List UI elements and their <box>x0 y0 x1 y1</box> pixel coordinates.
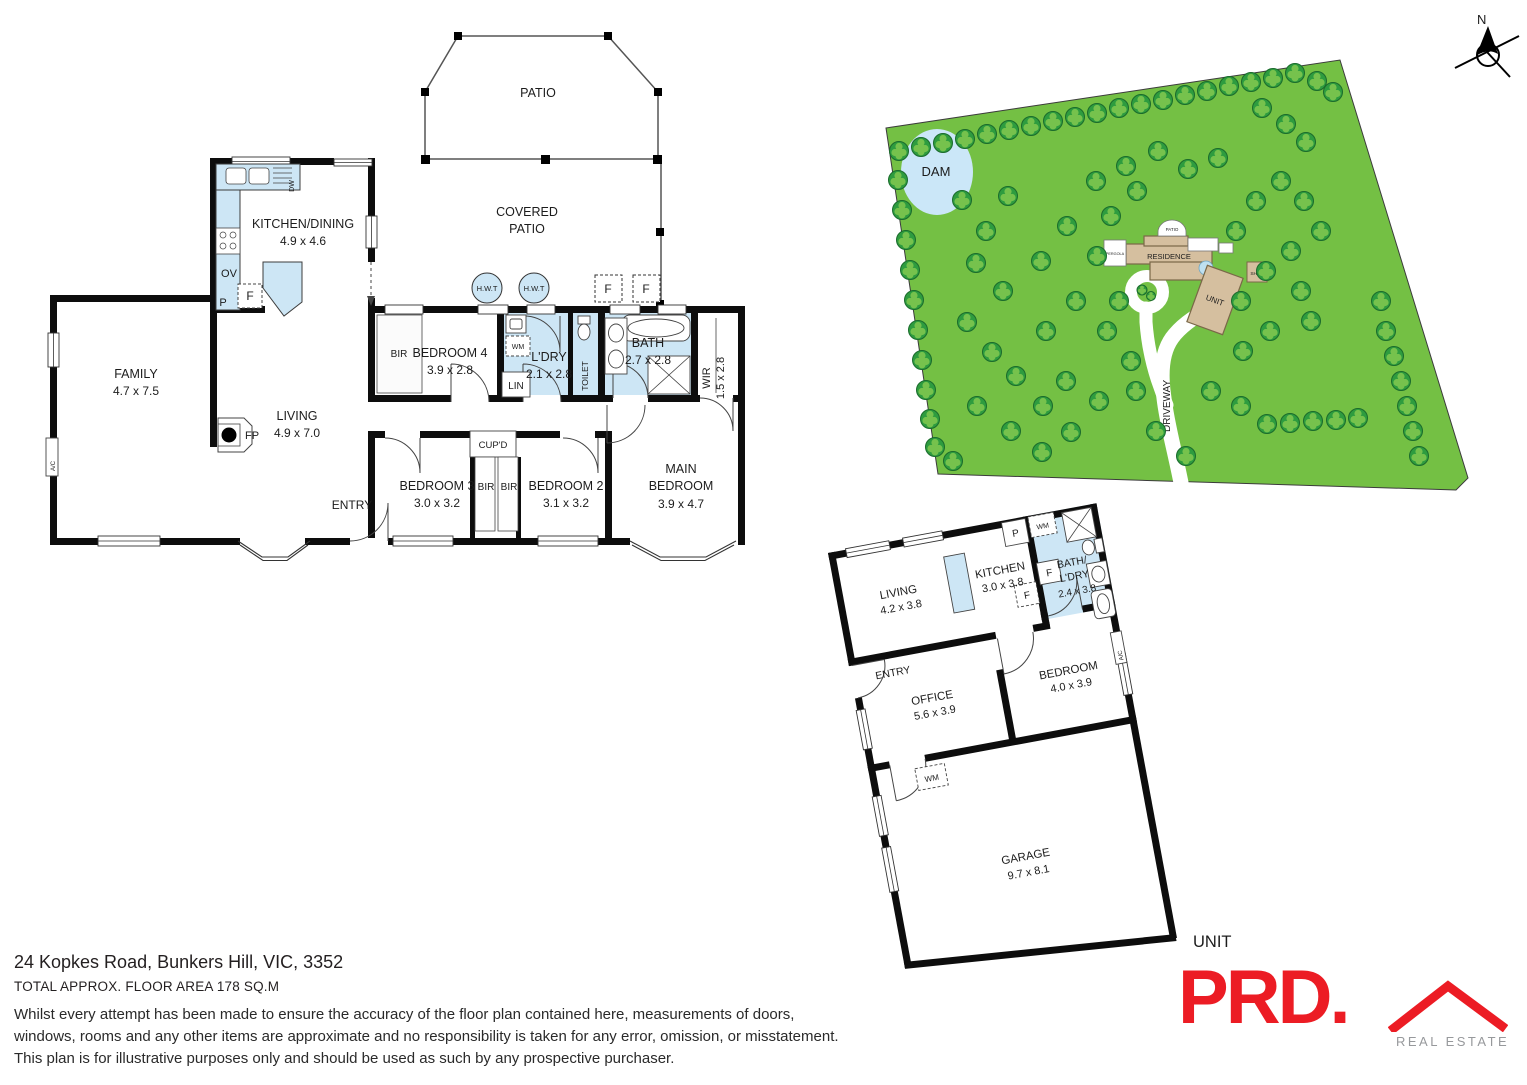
tree <box>1067 292 1086 311</box>
tree <box>978 125 997 144</box>
tree <box>1264 69 1283 88</box>
ulabel-entry: ENTRY <box>874 664 911 682</box>
tree <box>1137 285 1147 295</box>
tree <box>1295 192 1314 211</box>
tree <box>1177 447 1196 466</box>
label-living-dims: 4.9 x 7.0 <box>274 426 320 440</box>
tree <box>1044 112 1063 131</box>
site-outbuilding-b <box>1219 243 1233 253</box>
tree <box>1110 99 1129 118</box>
tree <box>1232 292 1251 311</box>
tree <box>913 351 932 370</box>
tree <box>1058 217 1077 236</box>
label-covered-1: COVERED <box>496 205 558 219</box>
label-bath-dims: 2.7 x 2.8 <box>625 353 671 367</box>
tree <box>1281 414 1300 433</box>
tree <box>968 397 987 416</box>
disclaimer-line-2: windows, rooms and any other items are a… <box>14 1026 954 1048</box>
tree <box>921 410 940 429</box>
tree <box>1385 347 1404 366</box>
tree <box>926 438 945 457</box>
disclaimer-line-3: This plan is for illustrative purposes o… <box>14 1048 954 1070</box>
tree <box>958 313 977 332</box>
label-bath: BATH <box>632 336 664 350</box>
tree <box>1227 222 1246 241</box>
tree <box>912 138 931 157</box>
site-plan: DAM DRIVEWAY PATIO PERGOLA RESIDENCE SHE… <box>886 60 1468 493</box>
label-bed3: BEDROOM 3 <box>399 479 474 493</box>
label-main-2: BEDROOM <box>649 479 714 493</box>
tree <box>889 171 908 190</box>
tree <box>1209 149 1228 168</box>
tree <box>994 282 1013 301</box>
unit-windows <box>827 502 1160 892</box>
label-f-1: F <box>604 282 611 296</box>
wet-fixtures <box>46 315 716 531</box>
unit-kitchen-bench <box>944 553 975 613</box>
tree <box>1277 115 1296 134</box>
label-ldry: L'DRY <box>531 350 567 364</box>
disclaimer-line-1: Whilst every attempt has been made to en… <box>14 1004 954 1026</box>
tree <box>1232 397 1251 416</box>
site-patio-label: PATIO <box>1166 227 1179 232</box>
tree <box>1032 252 1051 271</box>
bir-closet-b <box>498 457 518 531</box>
label-covered-2: PATIO <box>509 222 545 236</box>
tree <box>1117 157 1136 176</box>
tree <box>1377 322 1396 341</box>
tree <box>1057 372 1076 391</box>
prd-roof-icon <box>1388 976 1508 1032</box>
sink-bowl <box>226 168 246 184</box>
tree <box>967 254 986 273</box>
tree <box>1242 73 1261 92</box>
label-bed2-dims: 3.1 x 3.2 <box>543 496 589 510</box>
tree <box>1247 192 1266 211</box>
tree <box>893 201 912 220</box>
unit-plan: LIVING 4.2 x 3.8 KITCHEN 3.0 x 3.8 BATH/… <box>827 502 1179 991</box>
tree <box>1088 104 1107 123</box>
footer: 24 Kopkes Road, Bunkers Hill, VIC, 3352 … <box>14 952 954 1070</box>
label-family-dims: 4.7 x 7.5 <box>113 384 159 398</box>
prd-logo: PRD. REAL ESTATE <box>1178 968 1518 1068</box>
tree <box>1327 411 1346 430</box>
tree <box>1147 422 1166 441</box>
floorplan-page: DAM DRIVEWAY PATIO PERGOLA RESIDENCE SHE… <box>0 0 1527 1080</box>
label-entry: ENTRY <box>332 498 372 512</box>
tree <box>1282 242 1301 261</box>
tree <box>1297 133 1316 152</box>
cooktop <box>216 228 240 254</box>
site-pergola-label: PERGOLA <box>1106 252 1125 256</box>
prd-brand-text: PRD. <box>1178 954 1348 1041</box>
label-main-dims: 3.9 x 4.7 <box>658 497 704 511</box>
site-outbuilding-a <box>1188 238 1218 251</box>
north-needle <box>1476 26 1498 56</box>
tree <box>1154 91 1173 110</box>
label-bir-b: BIR <box>501 482 518 493</box>
tree <box>1234 342 1253 361</box>
tree <box>901 261 920 280</box>
label-fp: FP <box>245 430 259 442</box>
kitchen-island <box>263 262 302 316</box>
tree <box>1202 382 1221 401</box>
unit-caption: UNIT <box>1193 933 1232 951</box>
tree <box>1066 108 1085 127</box>
tree <box>1302 312 1321 331</box>
label-ac-main: A/C <box>51 460 57 471</box>
tree <box>999 187 1018 206</box>
disclaimer: Whilst every attempt has been made to en… <box>14 1004 954 1070</box>
tree <box>1122 352 1141 371</box>
tree <box>1308 72 1327 91</box>
tree <box>1062 423 1081 442</box>
tree <box>1033 443 1052 462</box>
tree <box>917 381 936 400</box>
label-bir-a: BIR <box>478 482 495 493</box>
label-patio: PATIO <box>520 86 556 100</box>
tree <box>983 343 1002 362</box>
tree <box>1088 247 1107 266</box>
tree <box>1022 117 1041 136</box>
tree <box>944 452 963 471</box>
driveway-label: DRIVEWAY <box>1162 379 1173 432</box>
tree <box>953 191 972 210</box>
label-ov: OV <box>221 268 238 280</box>
tree <box>1034 397 1053 416</box>
tree <box>890 142 909 161</box>
tree <box>1372 292 1391 311</box>
tree <box>1002 422 1021 441</box>
label-bed4: BEDROOM 4 <box>412 346 487 360</box>
tree <box>1179 160 1198 179</box>
unit-shower <box>1062 507 1097 542</box>
tree <box>1176 86 1195 105</box>
tree <box>1398 397 1417 416</box>
tree <box>1292 282 1311 301</box>
tree <box>1132 95 1151 114</box>
prd-tagline: REAL ESTATE <box>1396 1034 1509 1049</box>
tree <box>1304 412 1323 431</box>
label-main-1: MAIN <box>665 462 696 476</box>
label-f-kitchen: F <box>246 289 253 303</box>
tree <box>897 231 916 250</box>
label-wm: WM <box>512 344 525 351</box>
label-hwt-1: H.W.T <box>477 284 498 293</box>
label-ldry-dims: 2.1 x 2.8 <box>526 367 572 381</box>
label-family: FAMILY <box>114 367 158 381</box>
tree <box>1258 415 1277 434</box>
north-arrow: N <box>1455 12 1519 77</box>
tree <box>1410 447 1429 466</box>
label-kitchen-dims: 4.9 x 4.6 <box>280 234 326 248</box>
patio-posts <box>421 32 664 308</box>
tree <box>977 222 996 241</box>
bir-closet-a <box>475 457 495 531</box>
address-line: 24 Kopkes Road, Bunkers Hill, VIC, 3352 <box>14 952 954 973</box>
tree <box>1102 207 1121 226</box>
site-residence-label: RESIDENCE <box>1147 252 1191 261</box>
tree <box>1037 322 1056 341</box>
tree <box>1220 77 1239 96</box>
tree <box>1128 182 1147 201</box>
label-living: LIVING <box>277 409 318 423</box>
main-plan: PATIO COVERED PATIO KITCHEN/DINING 4.9 x… <box>46 32 745 561</box>
label-p: P <box>219 297 226 309</box>
tree <box>1312 222 1331 241</box>
tree <box>1198 82 1217 101</box>
label-lin: LIN <box>508 381 524 392</box>
dam-label: DAM <box>922 164 951 179</box>
tree <box>1257 262 1276 281</box>
tree <box>1149 142 1168 161</box>
tree <box>1007 367 1026 386</box>
label-bir-bed4: BIR <box>391 349 408 360</box>
tree <box>1272 172 1291 191</box>
label-bed2: BEDROOM 2 <box>528 479 603 493</box>
tree <box>1000 121 1019 140</box>
sink-bowl <box>249 168 269 184</box>
label-kitchen: KITCHEN/DINING <box>252 217 354 231</box>
tree <box>1392 372 1411 391</box>
tree <box>1147 292 1156 301</box>
tree <box>1110 292 1129 311</box>
tree <box>1087 172 1106 191</box>
tree <box>905 291 924 310</box>
hwt-group <box>472 273 660 303</box>
patio-outlines <box>421 36 662 308</box>
tree <box>1404 422 1423 441</box>
tree <box>1349 409 1368 428</box>
tree <box>956 130 975 149</box>
label-f-2: F <box>642 282 649 296</box>
tree <box>1127 382 1146 401</box>
tree <box>909 321 928 340</box>
north-label: N <box>1477 12 1486 27</box>
label-bed4-dims: 3.9 x 2.8 <box>427 363 473 377</box>
label-wir: WIR <box>701 367 713 388</box>
ulabel-garage-dims: 9.7 x 8.1 <box>1007 863 1051 882</box>
plans-canvas: DAM DRIVEWAY PATIO PERGOLA RESIDENCE SHE… <box>0 0 1527 1080</box>
tree <box>1286 64 1305 83</box>
floor-area-line: TOTAL APPROX. FLOOR AREA 178 SQ.M <box>14 979 954 994</box>
tree <box>1090 392 1109 411</box>
label-bed3-dims: 3.0 x 3.2 <box>414 496 460 510</box>
tree <box>1261 322 1280 341</box>
label-dw: DW <box>289 180 296 192</box>
label-cupd: CUP'D <box>479 440 508 451</box>
label-toilet: TOILET <box>580 361 590 391</box>
label-hwt-2: H.W.T <box>524 284 545 293</box>
tree <box>934 134 953 153</box>
tree <box>1098 322 1117 341</box>
label-wir-dims: 1.5 x 2.8 <box>715 357 727 399</box>
tree <box>1324 83 1343 102</box>
tree <box>1253 99 1272 118</box>
